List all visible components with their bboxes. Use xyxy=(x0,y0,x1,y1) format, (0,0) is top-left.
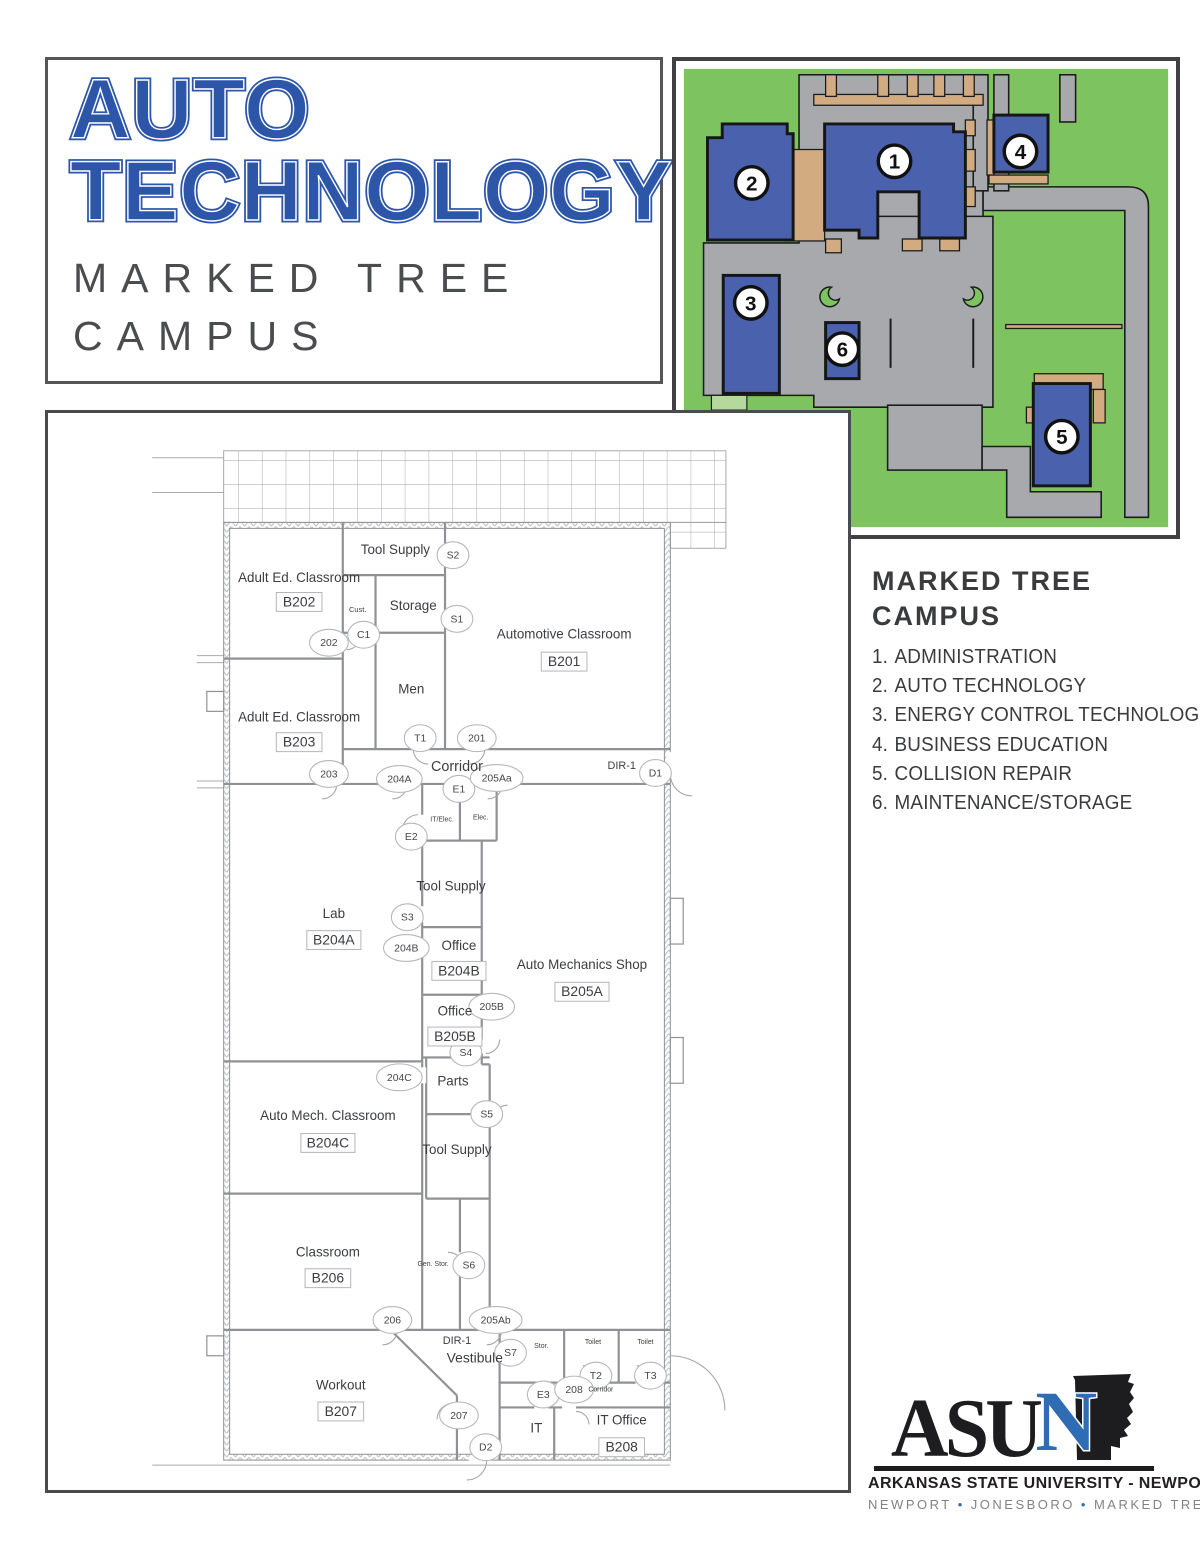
area-label: Corridor xyxy=(588,1387,614,1394)
wordmark-n: N xyxy=(1037,1373,1097,1464)
wordmark-asu: ASU xyxy=(891,1395,1039,1464)
room-name: Adult Ed. Classroom xyxy=(238,709,360,724)
door-tag-label: E3 xyxy=(537,1390,550,1401)
door-tag-label: 205Ab xyxy=(481,1315,511,1326)
door-tag-label: 205B xyxy=(480,1002,504,1013)
building-marker-number: 4 xyxy=(1015,141,1027,164)
door-tag-label: 206 xyxy=(384,1315,402,1326)
bullet-icon: • xyxy=(1081,1497,1088,1512)
room-name: Auto Mechanics Shop xyxy=(517,957,647,972)
door-tag-label: 207 xyxy=(450,1411,468,1422)
door-tag-label: T1 xyxy=(414,734,426,745)
legend-item-number: 3. xyxy=(872,703,888,726)
door-tag-label: C1 xyxy=(357,630,371,641)
room-name: IT Office xyxy=(597,1412,647,1427)
legend-item-number: 4. xyxy=(872,733,888,756)
legend-item-label: AUTO TECHNOLOGY xyxy=(895,674,1087,697)
area-label: Vestibule xyxy=(447,1350,504,1366)
floor-plan-svg: S2S1C1202T1201203204AE1205AaD1E2S3204B20… xyxy=(48,413,848,1490)
page: AUTO TECHNOLOGY MARKED TREE CAMPUS xyxy=(0,0,1200,1553)
door-tag-label: 208 xyxy=(565,1385,583,1396)
legend-heading-line2: CAMPUS xyxy=(872,599,1182,634)
area-label: Storage xyxy=(390,598,437,613)
door-tag-label: E1 xyxy=(453,784,466,795)
legend-item-number: 1. xyxy=(872,645,888,668)
door-tag-label: S2 xyxy=(447,551,460,562)
logo-campus-newport: NEWPORT xyxy=(868,1497,952,1512)
area-label: Parts xyxy=(437,1073,469,1088)
legend-item-4: 4.BUSINESS EDUCATION xyxy=(872,730,1157,759)
door-tag-label: 205Aa xyxy=(482,773,512,784)
door-tag-label: T3 xyxy=(644,1371,656,1382)
door-tag-label: 204B xyxy=(394,943,418,954)
legend-item-3: 3.ENERGY CONTROL TECHNOLOGY xyxy=(872,700,1157,729)
building-marker-number: 3 xyxy=(745,292,757,315)
door-tag-label: T2 xyxy=(590,1371,602,1382)
area-label: DIR-1 xyxy=(607,760,635,772)
bullet-icon: • xyxy=(958,1497,965,1512)
area-label: Tool Supply xyxy=(416,878,486,893)
room-name: Adult Ed. Classroom xyxy=(238,570,360,585)
area-label: DIR-1 xyxy=(443,1335,471,1347)
area-label: Toilet xyxy=(585,1339,601,1346)
door-tag-label: S1 xyxy=(451,614,464,625)
page-subtitle-line2: CAMPUS xyxy=(73,307,660,365)
asun-logo: ASU N ARKANSAS STATE UNIVERSITY - NEWPOR… xyxy=(868,1372,1160,1512)
room-name: Office xyxy=(442,938,477,953)
room-name: Lab xyxy=(323,906,345,921)
room-name: Office xyxy=(438,1004,473,1019)
room-number: B201 xyxy=(548,653,581,669)
legend-item-number: 2. xyxy=(872,674,888,697)
door-tag-label: S6 xyxy=(462,1261,475,1272)
door-tag-label: 204A xyxy=(387,774,411,785)
area-label: Corridor xyxy=(431,759,483,775)
page-subtitle-line1: MARKED TREE xyxy=(73,249,660,307)
room-number: B203 xyxy=(283,734,316,750)
room-number: B204B xyxy=(438,962,480,978)
legend-list: 1.ADMINISTRATION2.AUTO TECHNOLOGY3.ENERG… xyxy=(872,642,1157,817)
door-tag-label: 202 xyxy=(320,638,338,649)
area-label: Tool Supply xyxy=(422,1142,492,1157)
area-label: Toilet xyxy=(637,1339,653,1346)
logo-campus-list: NEWPORT•JONESBORO•MARKED TREE xyxy=(868,1497,1160,1512)
room-number: B202 xyxy=(283,593,316,609)
area-label: Elec. xyxy=(473,815,488,822)
door-tag-label: 204C xyxy=(387,1073,412,1084)
room-number: B204A xyxy=(313,932,355,948)
legend-item-label: MAINTENANCE/STORAGE xyxy=(895,791,1133,814)
legend-item-number: 5. xyxy=(872,762,888,785)
legend: MARKED TREE CAMPUS 1.ADMINISTRATION2.AUT… xyxy=(872,564,1182,817)
area-label: Stor. xyxy=(534,1343,548,1350)
room-name: Workout xyxy=(316,1378,366,1393)
door-tag-label: D1 xyxy=(649,768,663,779)
room-number: B206 xyxy=(312,1270,345,1286)
room-name: Classroom xyxy=(296,1244,360,1259)
legend-item-number: 6. xyxy=(872,791,888,814)
door-tag-label: S3 xyxy=(401,913,414,924)
door-tag-label: S7 xyxy=(504,1348,517,1359)
area-label: Gen. Stor. xyxy=(418,1261,449,1268)
logo-campus-jonesboro: JONESBORO xyxy=(971,1497,1075,1512)
area-label: Tool Supply xyxy=(361,542,431,557)
page-title-line2: TECHNOLOGY xyxy=(70,150,660,232)
page-title-line1: AUTO xyxy=(70,68,660,150)
legend-item-6: 6.MAINTENANCE/STORAGE xyxy=(872,788,1157,817)
legend-item-label: ADMINISTRATION xyxy=(895,645,1058,668)
floor-plan-rooms: Adult Ed. ClassroomB202Adult Ed. Classro… xyxy=(238,570,647,1457)
building-marker-number: 6 xyxy=(837,339,849,362)
title-box: AUTO TECHNOLOGY MARKED TREE CAMPUS xyxy=(45,57,663,384)
arkansas-state-icon: N xyxy=(1037,1372,1141,1464)
door-tag-label: E2 xyxy=(405,832,418,843)
area-label: Cust. xyxy=(349,605,366,614)
legend-item-label: COLLISION REPAIR xyxy=(895,762,1073,785)
legend-item-2: 2.AUTO TECHNOLOGY xyxy=(872,671,1157,700)
door-tag-label: 201 xyxy=(468,734,486,745)
building-marker-number: 1 xyxy=(889,151,901,174)
room-number: B204C xyxy=(307,1134,349,1150)
legend-item-label: BUSINESS EDUCATION xyxy=(895,733,1109,756)
door-tag-label: D2 xyxy=(479,1443,493,1454)
legend-item-label: ENERGY CONTROL TECHNOLOGY xyxy=(895,703,1200,726)
door-tag-label: S4 xyxy=(459,1048,472,1059)
legend-heading-line1: MARKED TREE xyxy=(872,564,1182,599)
room-number: B207 xyxy=(325,1403,358,1419)
legend-item-5: 5.COLLISION REPAIR xyxy=(872,759,1157,788)
building-marker-number: 2 xyxy=(746,172,758,195)
door-tag-label: S5 xyxy=(480,1110,493,1121)
room-name: Automotive Classroom xyxy=(497,627,632,642)
logo-university-name: ARKANSAS STATE UNIVERSITY - NEWPORT xyxy=(868,1475,1160,1493)
legend-item-1: 1.ADMINISTRATION xyxy=(872,642,1157,671)
building-marker-number: 5 xyxy=(1056,426,1068,449)
floor-plan-door-tags: S2S1C1202T1201203204AE1205AaD1E2S3204B20… xyxy=(310,542,672,1461)
room-number: B205B xyxy=(434,1028,476,1044)
asun-wordmark: ASU N xyxy=(868,1372,1160,1464)
area-label: IT xyxy=(530,1420,542,1435)
door-tag-label: 203 xyxy=(320,769,338,780)
logo-campus-markedtree: MARKED TREE xyxy=(1094,1497,1200,1512)
floor-plan: S2S1C1202T1201203204AE1205AaD1E2S3204B20… xyxy=(45,410,851,1493)
room-number: B208 xyxy=(605,1439,638,1455)
area-label: Men xyxy=(398,681,424,696)
room-name: Auto Mech. Classroom xyxy=(260,1108,395,1123)
area-label: IT/Elec. xyxy=(430,817,454,824)
room-number: B205A xyxy=(561,983,603,999)
